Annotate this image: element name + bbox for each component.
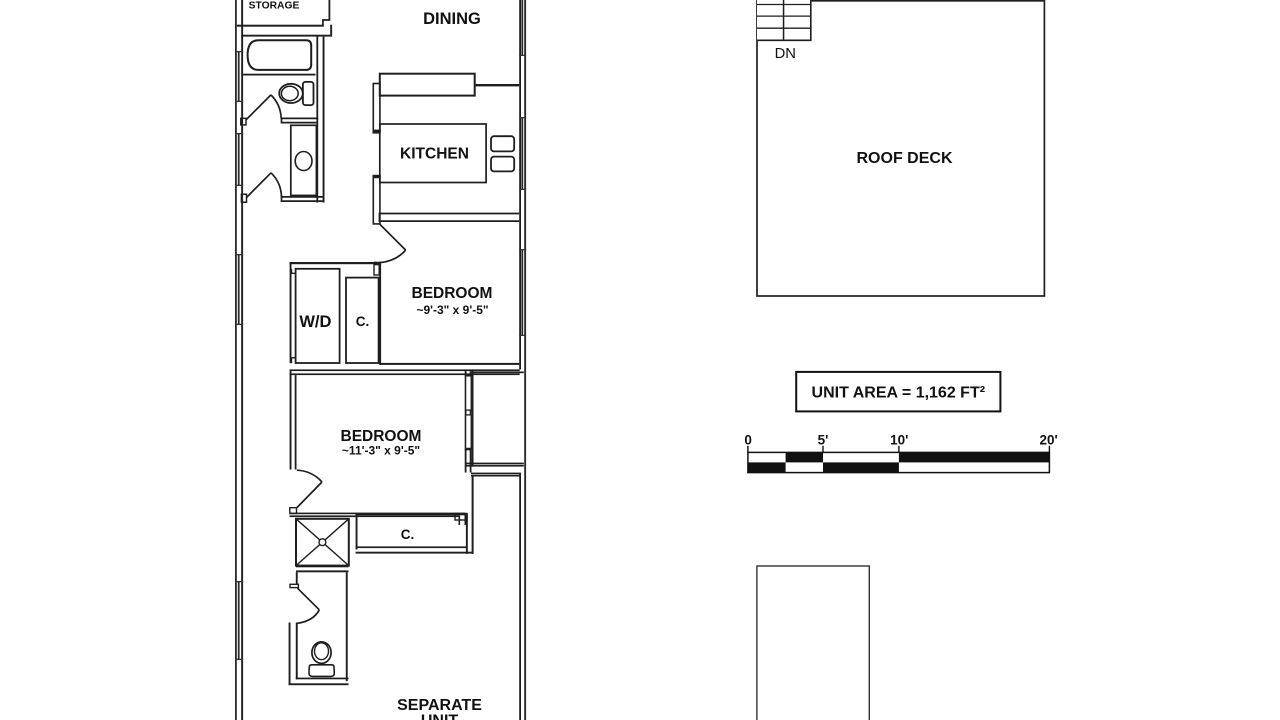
svg-text:ROOF DECK: ROOF DECK <box>857 150 953 167</box>
svg-text:5': 5' <box>818 432 829 447</box>
svg-text:KITCHEN: KITCHEN <box>400 146 469 163</box>
svg-text:~9'-3" x 9'-5": ~9'-3" x 9'-5" <box>416 303 488 317</box>
svg-text:20': 20' <box>1039 432 1057 447</box>
svg-text:W/D: W/D <box>299 313 331 331</box>
svg-text:UNIT AREA = 1,162 FT²: UNIT AREA = 1,162 FT² <box>812 385 986 402</box>
svg-text:SEPARATE: SEPARATE <box>397 697 482 714</box>
svg-text:~11'-3" x 9'-5": ~11'-3" x 9'-5" <box>342 444 420 458</box>
svg-text:C.: C. <box>401 527 415 542</box>
svg-text:UNIT: UNIT <box>421 713 459 720</box>
svg-text:BEDROOM: BEDROOM <box>412 285 493 302</box>
svg-text:BEDROOM: BEDROOM <box>341 428 422 445</box>
svg-text:DINING: DINING <box>423 10 481 28</box>
svg-text:C.: C. <box>356 314 370 329</box>
svg-text:0: 0 <box>744 432 752 447</box>
svg-text:10': 10' <box>890 432 908 447</box>
svg-text:DN: DN <box>775 46 796 62</box>
svg-text:STORAGE: STORAGE <box>249 1 300 12</box>
